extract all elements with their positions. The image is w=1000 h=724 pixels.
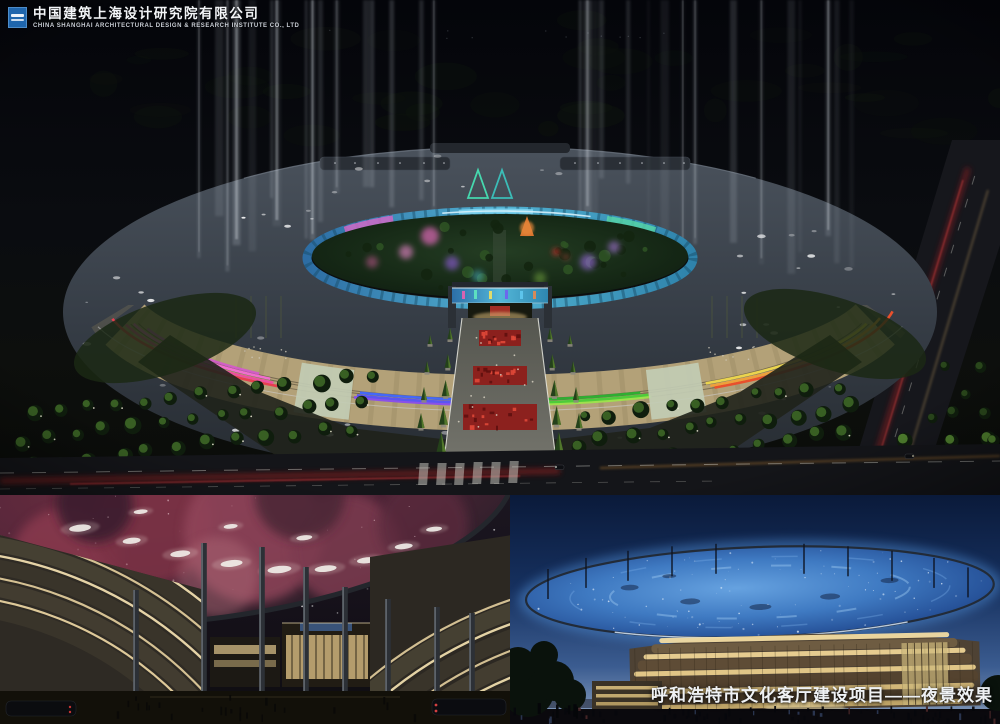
company-name-en: CHINA SHANGHAI ARCHITECTURAL DESIGN & RE… bbox=[33, 23, 299, 29]
company-logo-mark-icon bbox=[8, 7, 27, 28]
project-caption: 呼和浩特市文化客厅建设项目——夜景效果 bbox=[651, 681, 993, 706]
detail-rendering-canopy bbox=[0, 495, 510, 724]
foreground-plaza bbox=[0, 691, 510, 724]
company-name-cn: 中国建筑上海设计研究院有限公司 bbox=[33, 7, 299, 21]
parked-car-right bbox=[432, 699, 506, 715]
presentation-board: 中国建筑上海设计研究院有限公司 CHINA SHANGHAI ARCHITECT… bbox=[0, 0, 1000, 724]
main-aerial-rendering bbox=[0, 0, 1000, 495]
parked-car-left bbox=[6, 701, 76, 716]
nebula-canopy-scene bbox=[0, 495, 510, 724]
company-name-block: 中国建筑上海设计研究院有限公司 CHINA SHANGHAI ARCHITECT… bbox=[33, 7, 299, 29]
aerial-night-scene bbox=[0, 0, 1000, 495]
company-logo: 中国建筑上海设计研究院有限公司 CHINA SHANGHAI ARCHITECT… bbox=[8, 7, 299, 29]
vignette bbox=[0, 0, 1000, 495]
